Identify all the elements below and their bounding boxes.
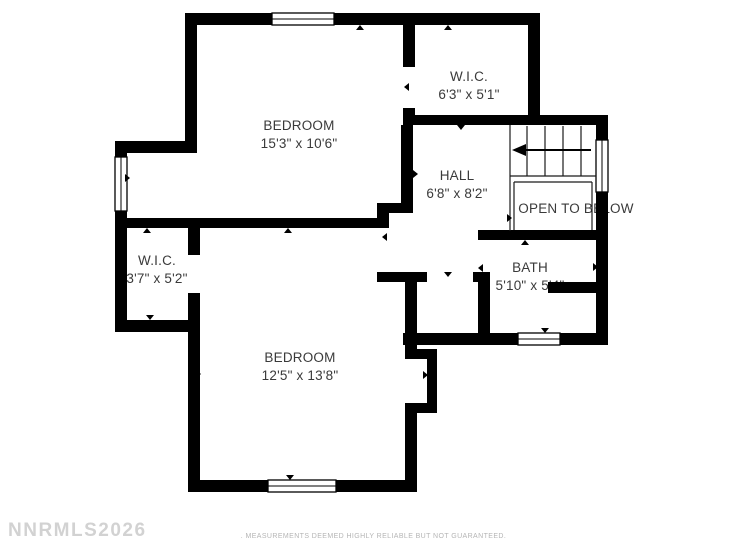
- floorplan-page: BEDROOM 15'3" x 10'6" W.I.C. 6'3" x 5'1"…: [0, 0, 747, 560]
- footer-layer: NNRMLS2026 . MEASUREMENTS DEEMED HIGHLY …: [0, 0, 747, 560]
- mls-watermark: NNRMLS2026: [8, 520, 147, 542]
- measurement-disclaimer: . MEASUREMENTS DEEMED HIGHLY RELIABLE BU…: [241, 533, 506, 540]
